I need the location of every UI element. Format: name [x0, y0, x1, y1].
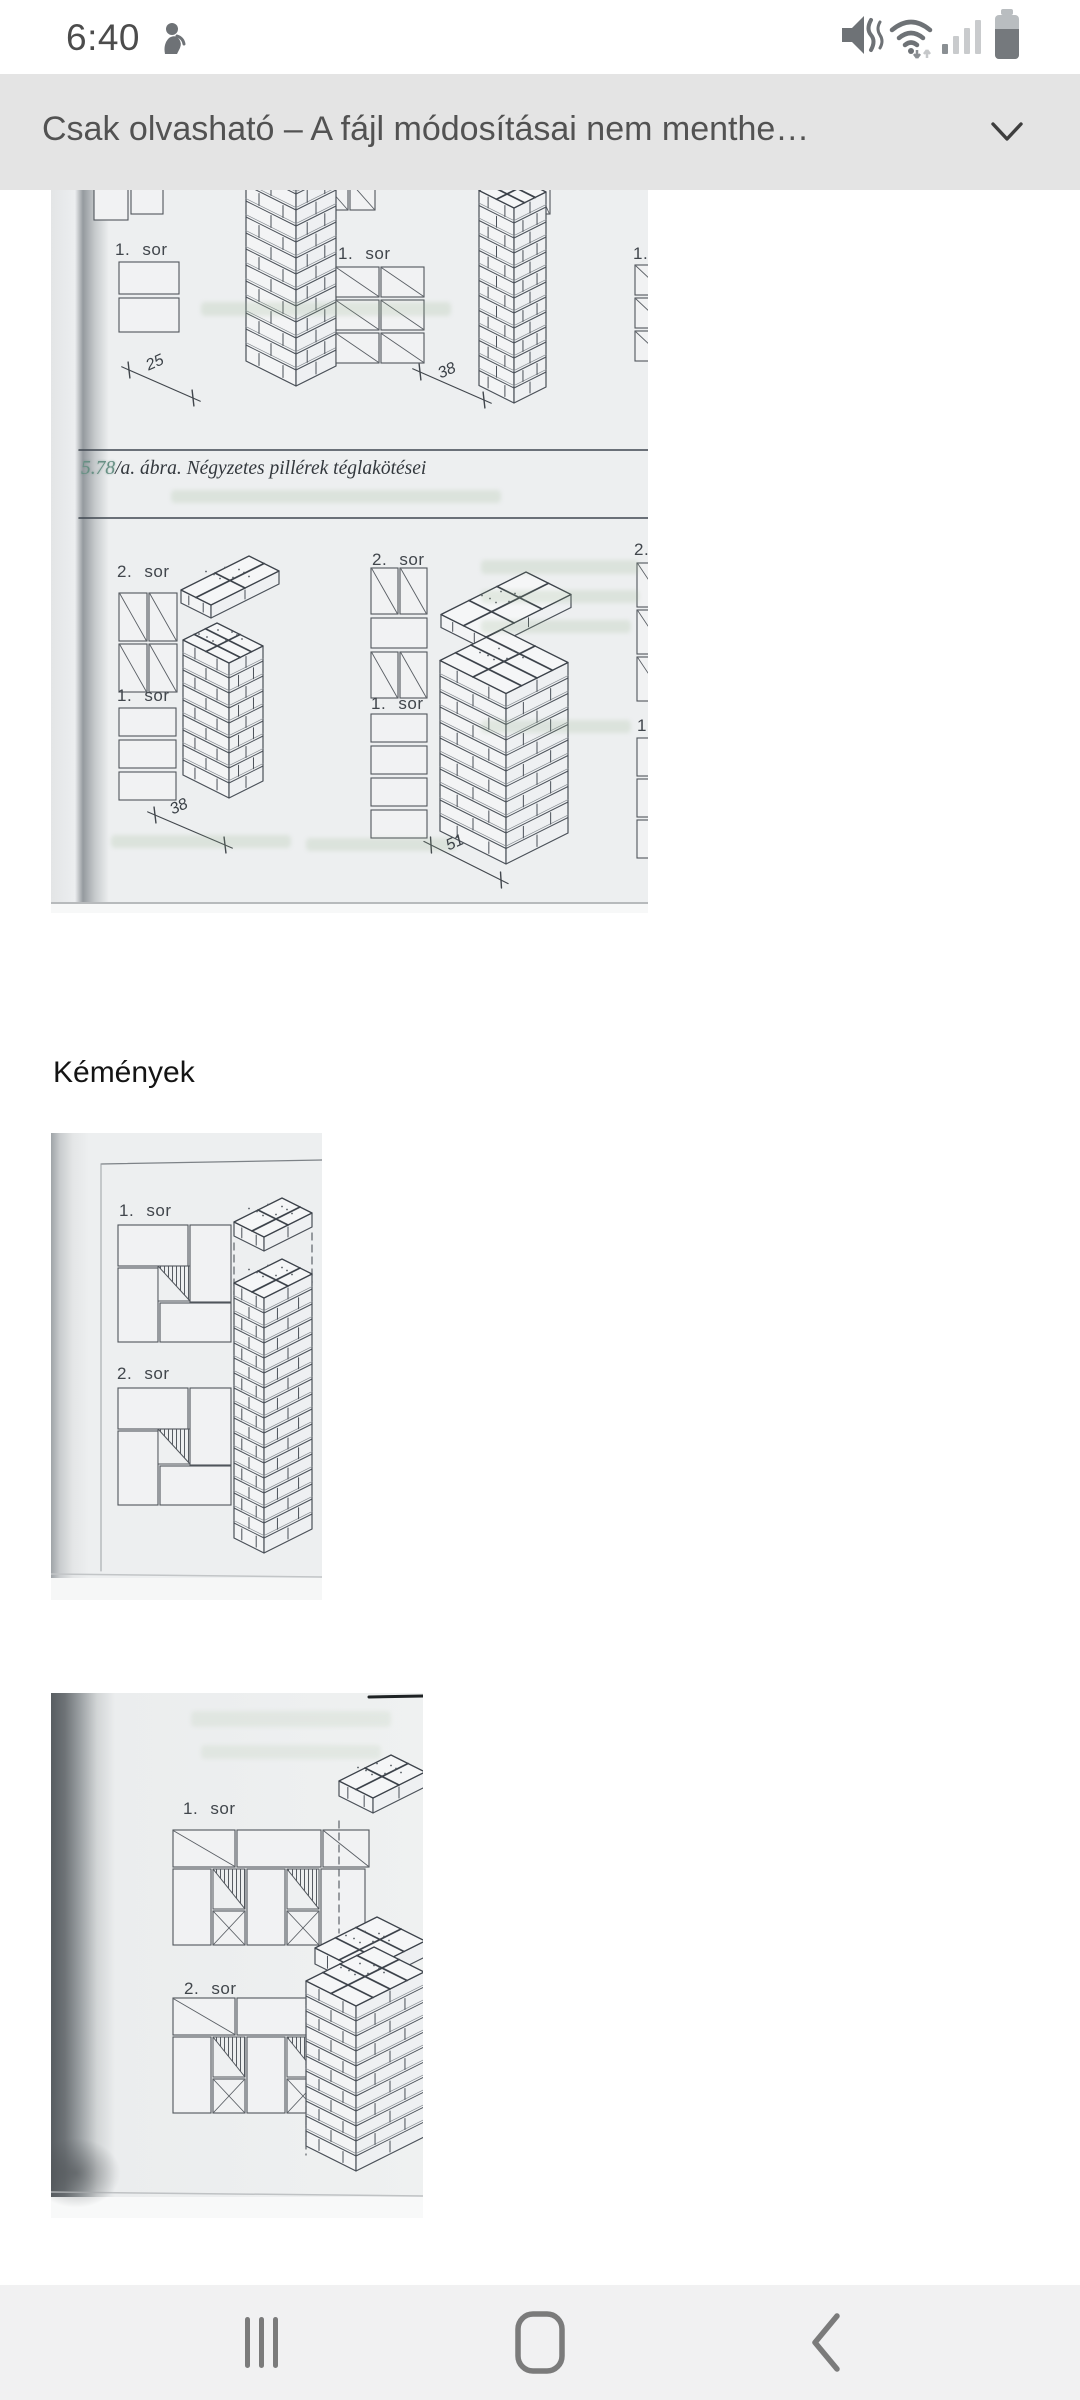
notification-person-icon — [155, 22, 187, 56]
section-heading: Kémények — [53, 1056, 195, 1090]
figure-chimney-single-scan: 1. sor 2. sor — [51, 1133, 322, 1600]
figure-brick-pillars-scan: 1. sor 1. sor 1. sor 25 38 5.78/a. ábra.… — [51, 190, 648, 913]
brick-pillars-drawing — [51, 190, 648, 913]
clock: 6:40 — [66, 17, 140, 59]
home-button[interactable] — [480, 2285, 600, 2400]
figure-row-label: 2. sor — [117, 1364, 170, 1384]
readonly-banner[interactable]: Csak olvasható – A fájl módosításai nem … — [0, 74, 1080, 190]
figure-caption: 5.78/a. ábra. Négyzetes pillérek téglakö… — [81, 458, 641, 480]
chevron-down-icon[interactable] — [990, 120, 1024, 144]
figure-row-label: 1. sor — [371, 694, 424, 714]
signal-strength-icon — [940, 18, 984, 56]
figure-row-label: 2. sor — [634, 540, 648, 560]
mute-vibrate-icon — [840, 14, 884, 58]
readonly-message: Csak olvasható – A fájl módosításai nem … — [42, 110, 809, 149]
phone-screen: 6:40 — [0, 0, 1080, 2400]
back-button[interactable] — [766, 2285, 886, 2400]
figure-row-label: 1. sor — [119, 1201, 172, 1221]
figure-row-label: 1. sor — [633, 244, 648, 264]
chimney-drawing — [51, 1133, 322, 1600]
wifi-icon — [888, 12, 934, 60]
chimney-drawing — [51, 1693, 423, 2218]
figure-caption-text: /a. ábra. Négyzetes pillérek téglakötése… — [115, 458, 426, 479]
status-bar: 6:40 — [0, 0, 1080, 74]
figure-row-label: 1. sor — [338, 244, 391, 264]
figure-row-label: 1. sor — [115, 240, 168, 260]
battery-icon — [994, 8, 1020, 60]
figure-row-label: 2. sor — [372, 550, 425, 570]
figure-row-label: 1. sor — [637, 716, 648, 736]
figure-row-label: 2. sor — [184, 1979, 237, 1999]
figure-row-label: 1. sor — [183, 1799, 236, 1819]
navigation-bar — [0, 2285, 1080, 2400]
figure-row-label: 2. sor — [117, 562, 170, 582]
figure-row-label: 1. sor — [117, 686, 170, 706]
figure-chimney-double-scan: 1. sor 2. sor — [51, 1693, 423, 2218]
recents-button[interactable] — [202, 2285, 322, 2400]
document-area[interactable]: 1. sor 1. sor 1. sor 25 38 5.78/a. ábra.… — [0, 190, 1080, 2285]
figure-number: 5.78 — [81, 458, 115, 479]
